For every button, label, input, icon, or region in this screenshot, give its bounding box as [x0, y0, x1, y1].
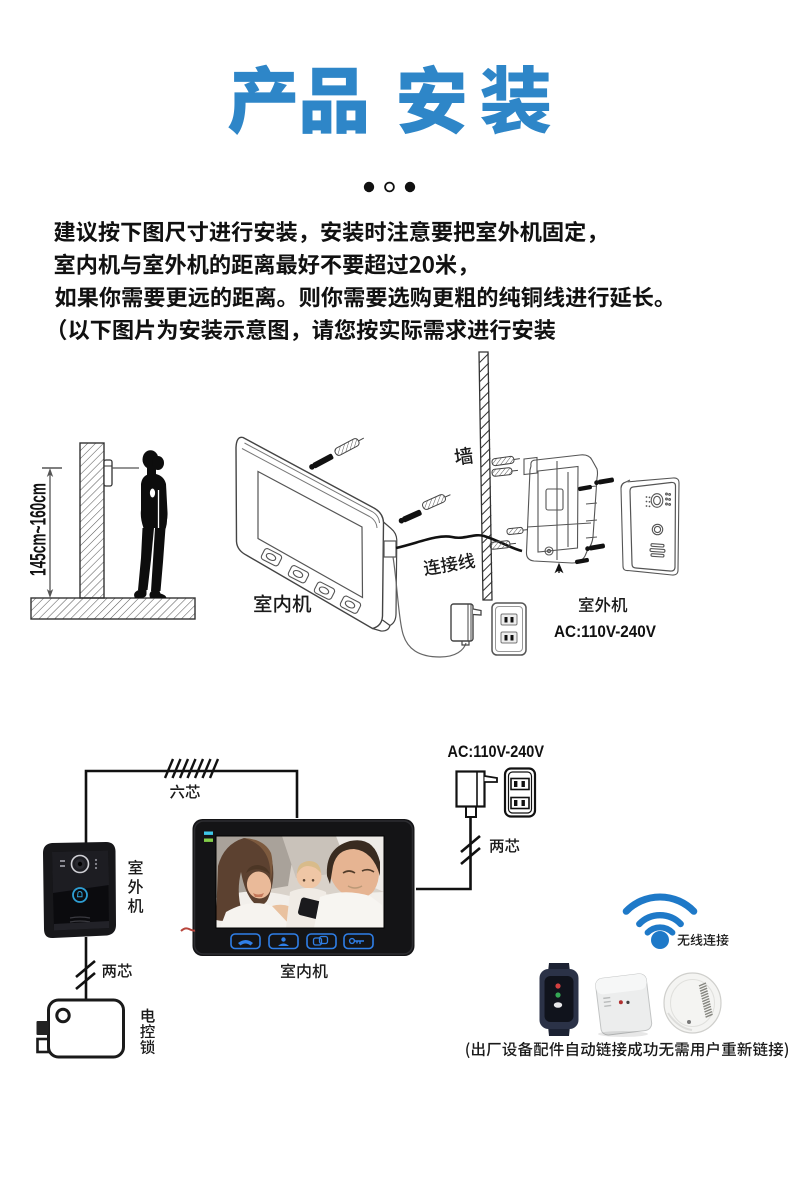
svg-text:AC:110V-240V: AC:110V-240V — [554, 622, 657, 641]
svg-text:AC:110V-240V: AC:110V-240V — [448, 742, 545, 761]
svg-text:145cm~160cm: 145cm~160cm — [25, 483, 50, 576]
